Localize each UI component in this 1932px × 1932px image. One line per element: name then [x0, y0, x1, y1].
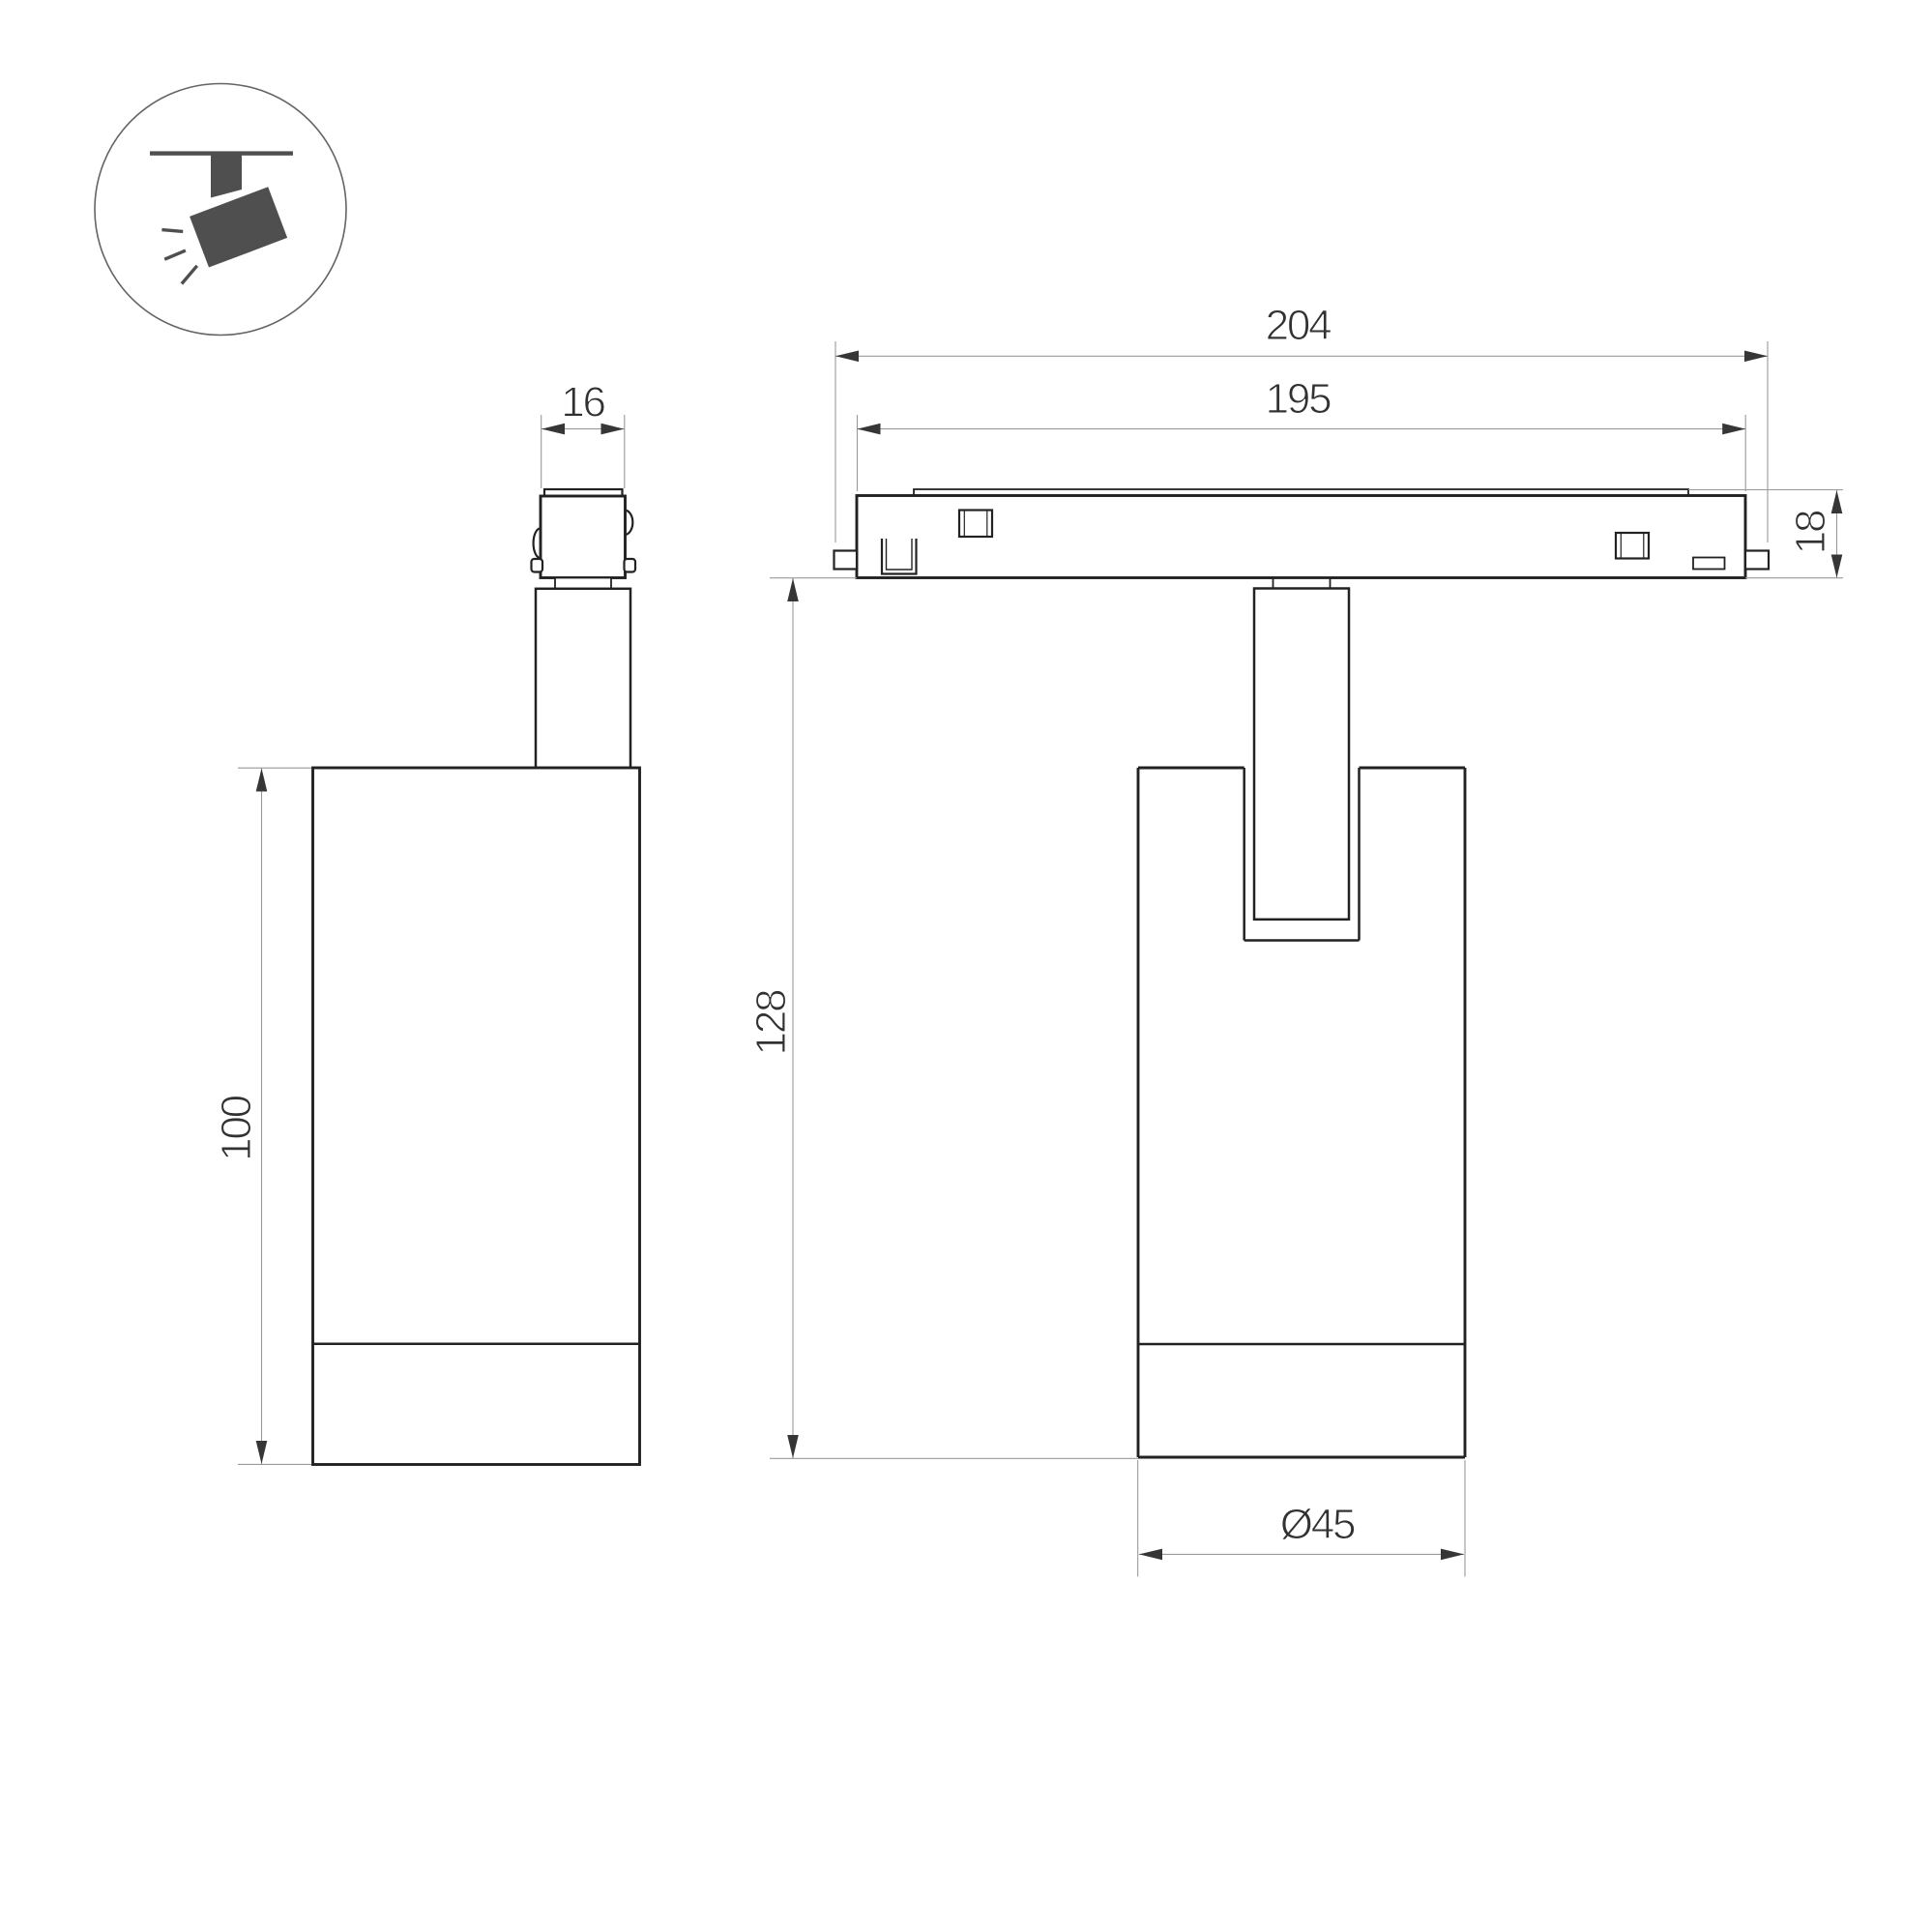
svg-text:195: 195 [1266, 375, 1332, 423]
svg-text:204: 204 [1266, 302, 1332, 349]
svg-text:16: 16 [561, 379, 604, 426]
svg-text:128: 128 [747, 990, 795, 1056]
svg-text:18: 18 [1787, 511, 1834, 554]
svg-text:100: 100 [213, 1096, 260, 1161]
svg-text:Ø45: Ø45 [1280, 1501, 1355, 1548]
